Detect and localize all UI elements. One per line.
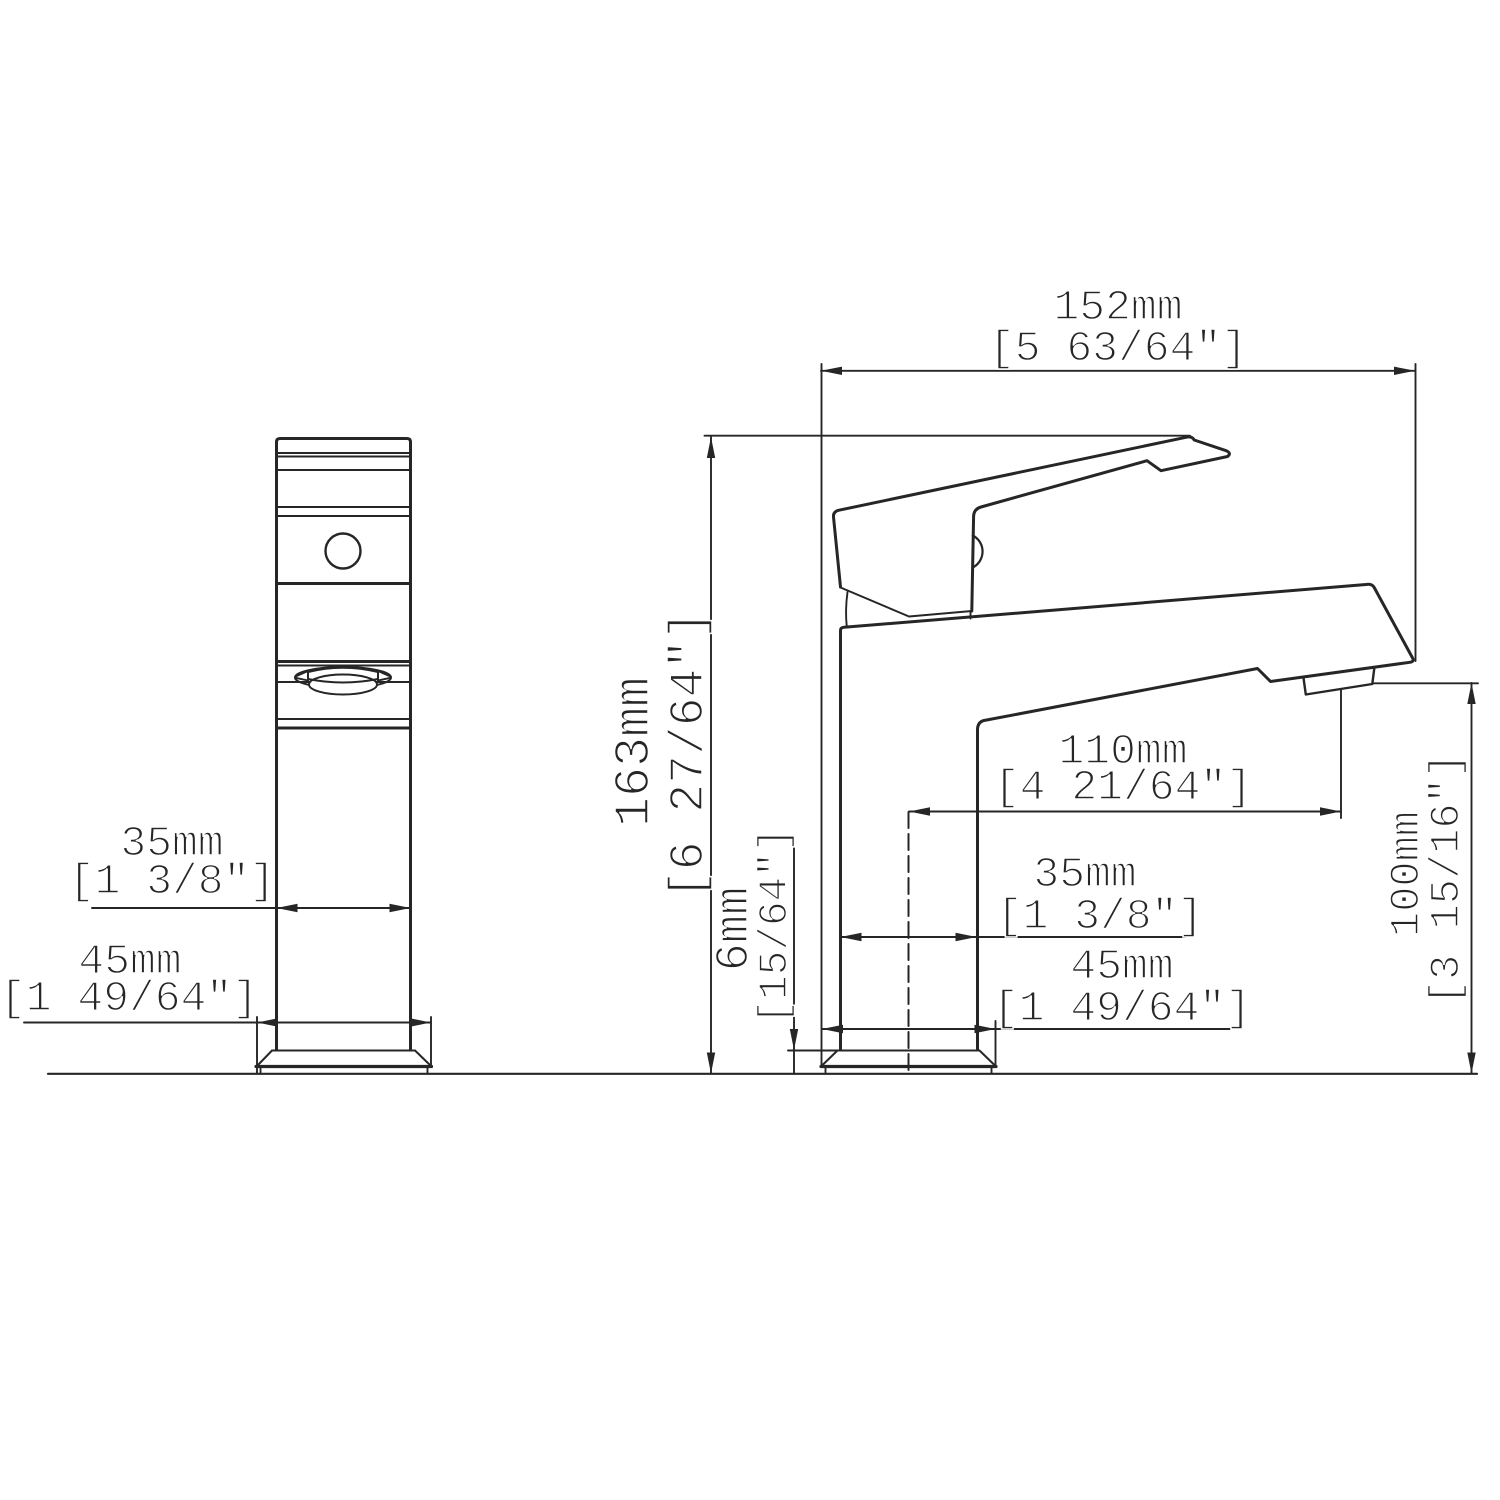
svg-text:[5 63/64″]: [5 63/64″] bbox=[989, 324, 1247, 373]
svg-text:163mm: 163mm bbox=[607, 677, 664, 827]
svg-text:[1 3/8″]: [1 3/8″] bbox=[69, 857, 275, 906]
svg-text:[4 21/64″]: [4 21/64″] bbox=[994, 763, 1252, 812]
svg-text:[1 49/64″]: [1 49/64″] bbox=[993, 984, 1251, 1033]
svg-text:[3 15/16″]: [3 15/16″] bbox=[1423, 753, 1471, 1005]
svg-text:[6 27/64″]: [6 27/64″] bbox=[663, 611, 717, 899]
svg-text:[15/64″]: [15/64″] bbox=[753, 828, 799, 1025]
svg-text:[1 3/8″]: [1 3/8″] bbox=[997, 892, 1203, 941]
svg-text:[1 49/64″]: [1 49/64″] bbox=[0, 974, 258, 1023]
